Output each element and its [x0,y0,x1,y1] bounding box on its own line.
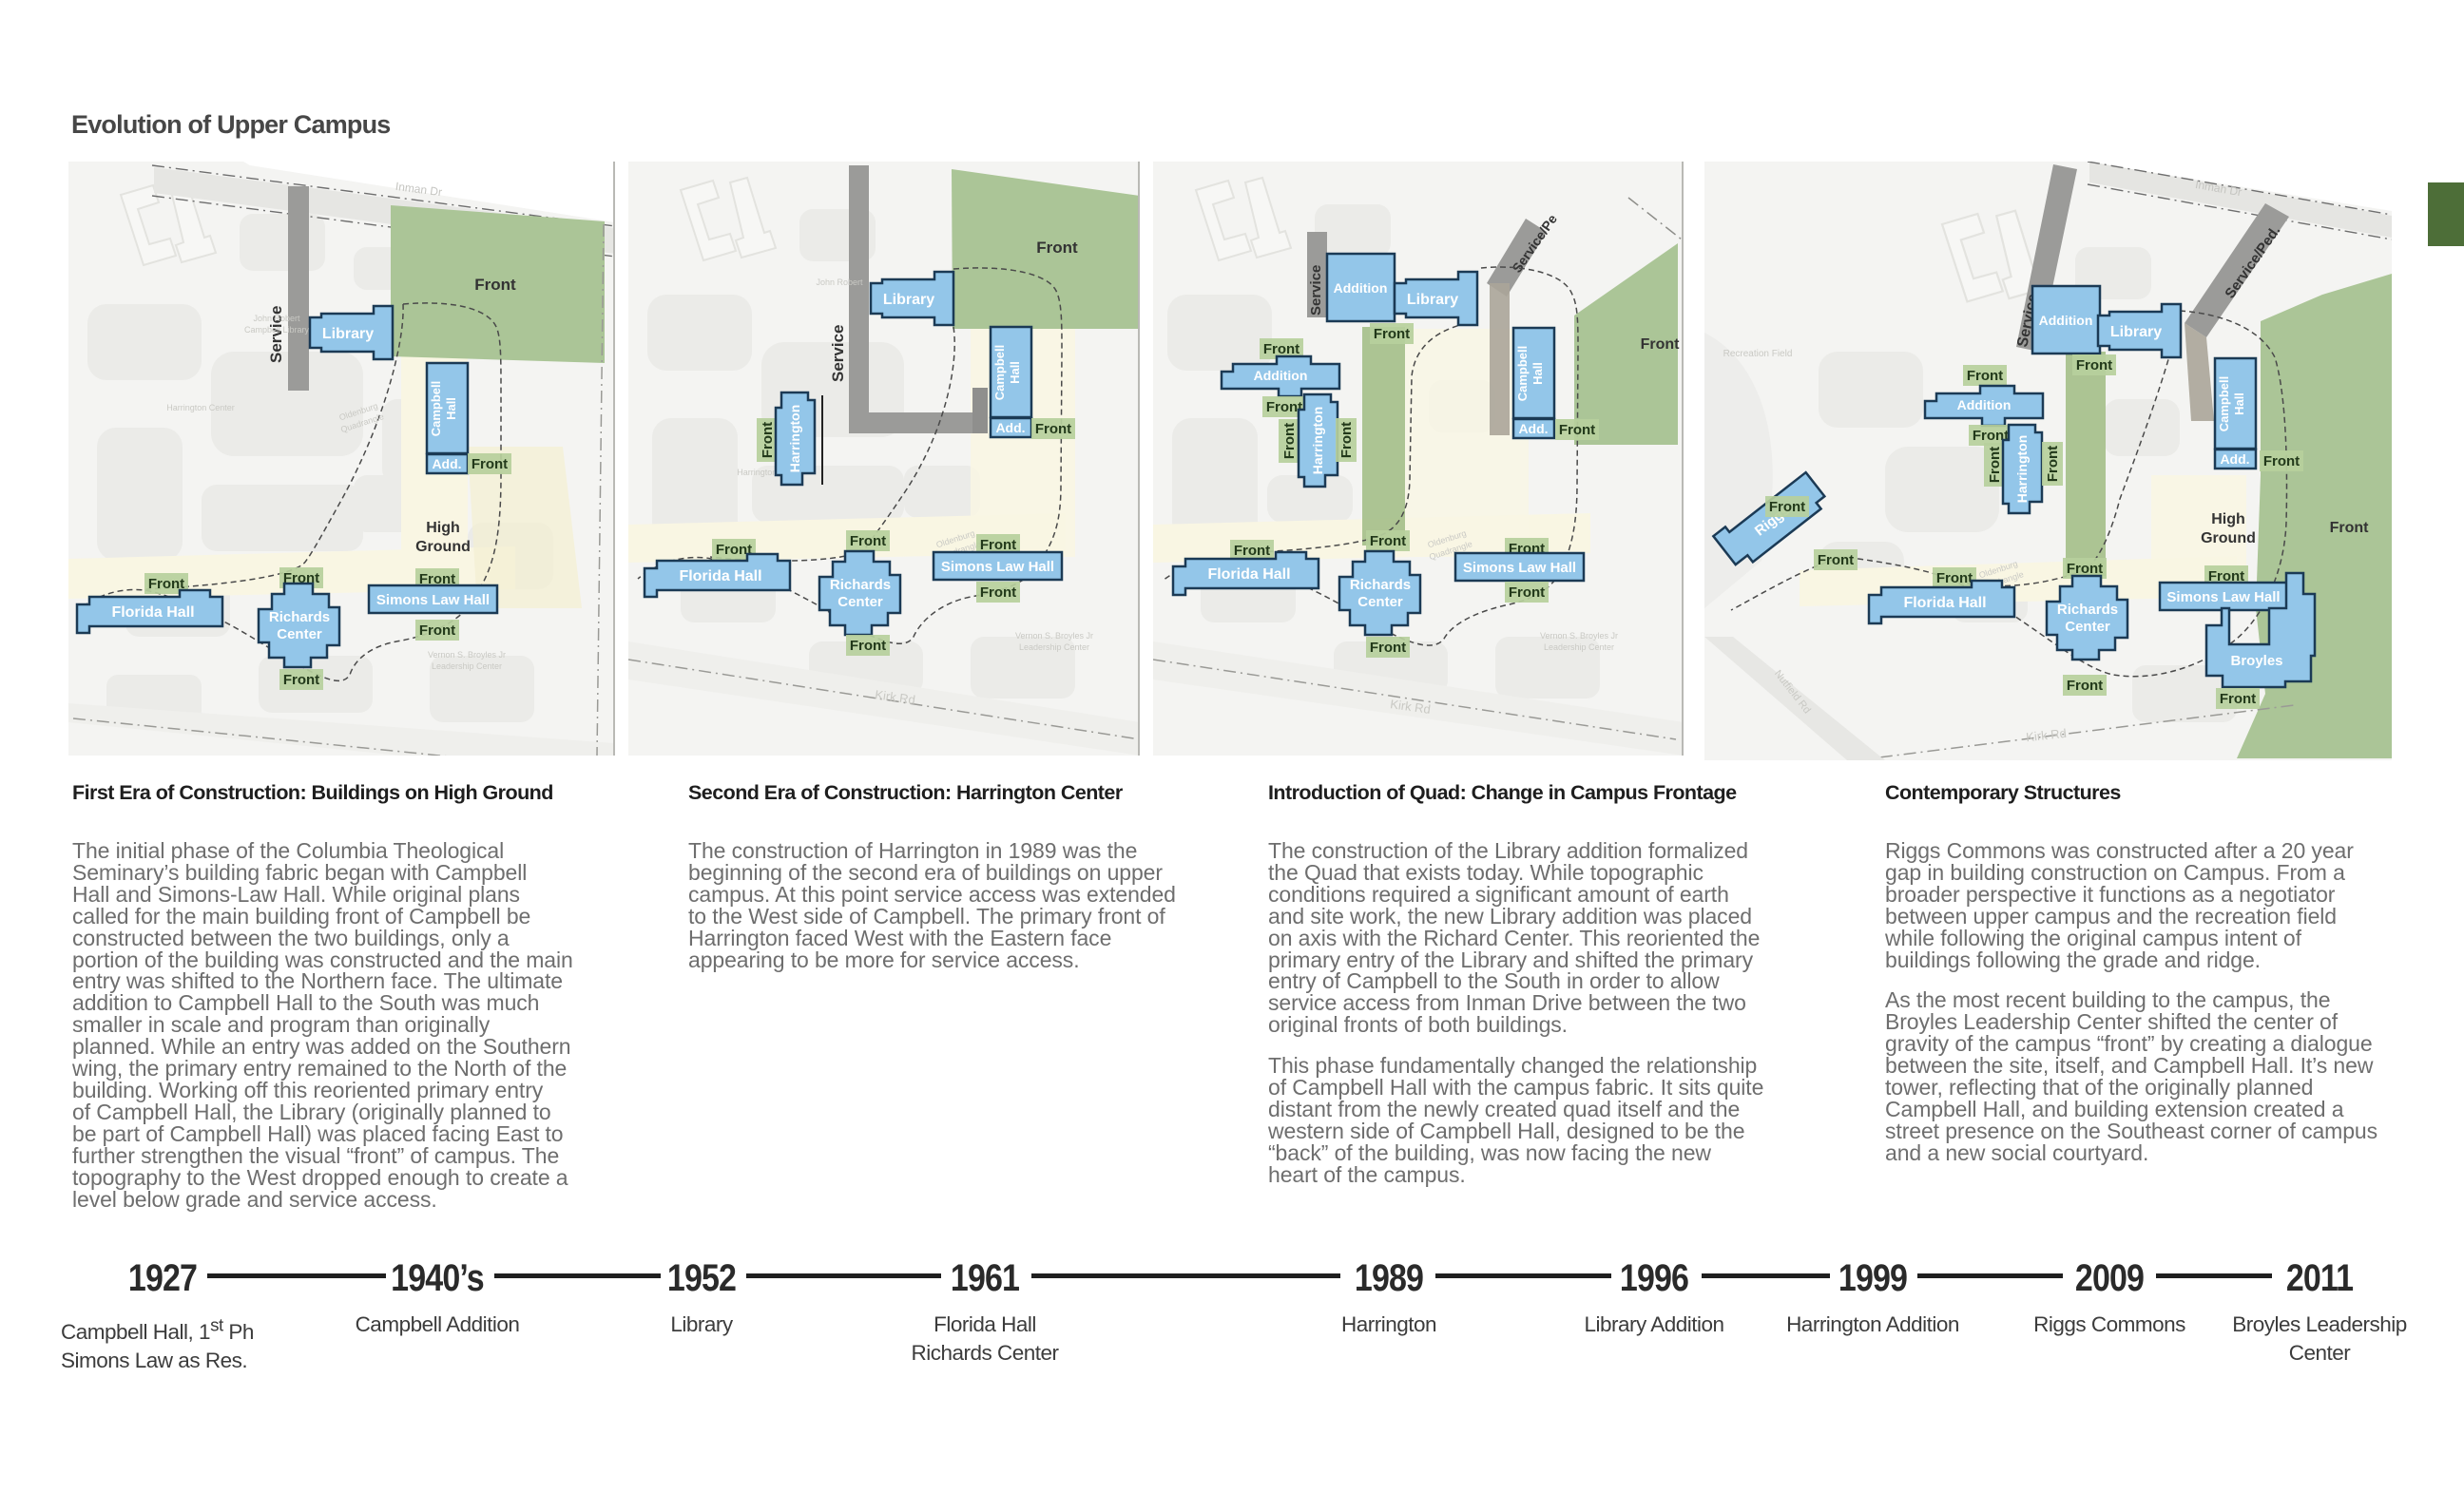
svg-text:Addition: Addition [2039,313,2093,328]
svg-text:High: High [426,520,460,536]
svg-text:Front: Front [1987,447,2003,483]
svg-text:Front: Front [980,537,1016,553]
svg-text:Leadership Center: Leadership Center [432,661,502,671]
svg-text:Ground: Ground [415,539,471,555]
svg-text:Richards: Richards [2057,602,2118,618]
svg-text:Front: Front [760,422,776,458]
svg-text:Front: Front [283,672,319,688]
svg-text:Front: Front [2330,520,2370,536]
svg-text:Add.: Add. [995,420,1025,435]
svg-text:Simons Law Hall: Simons Law Hall [2166,589,2280,605]
svg-text:Simons Law Hall: Simons Law Hall [376,592,490,608]
svg-text:Front: Front [1641,336,1681,353]
svg-text:Front: Front [1818,552,1854,568]
svg-text:Front: Front [850,638,886,654]
svg-text:Broyles: Broyles [2230,653,2282,669]
svg-text:Front: Front [1266,399,1302,415]
svg-text:Add.: Add. [1518,421,1548,436]
svg-text:Harrington Center: Harrington Center [166,403,235,412]
svg-text:Vernon S. Broyles Jr: Vernon S. Broyles Jr [1015,631,1093,641]
svg-text:Campbell: Campbell [2217,376,2231,432]
svg-text:Front: Front [2076,357,2112,373]
svg-text:Campbell: Campbell [1515,346,1530,402]
svg-text:Hall: Hall [2232,392,2246,415]
svg-text:Front: Front [1234,543,1270,559]
svg-text:Front: Front [1936,570,1973,586]
svg-text:Center: Center [1357,594,1403,610]
svg-text:Richards: Richards [269,609,330,625]
svg-text:Service: Service [1308,265,1324,316]
svg-text:Simons Law Hall: Simons Law Hall [1463,560,1576,576]
svg-text:Leadership Center: Leadership Center [1544,642,1614,652]
svg-text:Library: Library [2110,324,2162,340]
svg-text:Campbell: Campbell [992,345,1007,401]
svg-text:Front: Front [1281,423,1298,459]
svg-text:Center: Center [837,594,883,610]
svg-text:Florida Hall: Florida Hall [111,604,194,621]
svg-text:Front: Front [2045,446,2061,482]
svg-text:Front: Front [1370,533,1406,549]
svg-text:Front: Front [474,276,516,294]
svg-text:Hall: Hall [1008,361,1022,384]
svg-text:Front: Front [1035,421,1071,437]
svg-text:John Robert: John Robert [816,278,863,287]
svg-text:Front: Front [1370,640,1406,656]
svg-text:Front: Front [1036,239,1078,257]
svg-text:Florida Hall: Florida Hall [679,568,761,584]
svg-text:Front: Front [472,456,508,472]
svg-text:Richards: Richards [830,577,891,593]
svg-text:Front: Front [419,622,455,639]
svg-text:Front: Front [1338,422,1355,458]
svg-text:Front: Front [1509,584,1545,601]
svg-text:Addition: Addition [1254,368,1308,383]
svg-text:Library: Library [883,292,934,308]
svg-text:Harrington: Harrington [2014,435,2030,504]
svg-text:Front: Front [2263,453,2300,469]
svg-text:Add.: Add. [432,456,461,471]
svg-text:Front: Front [2067,678,2103,694]
svg-text:Florida Hall: Florida Hall [1207,566,1290,583]
svg-text:Vernon S. Broyles Jr: Vernon S. Broyles Jr [1540,631,1618,641]
svg-text:Campbell Library: Campbell Library [244,325,310,335]
svg-text:Hall: Hall [1530,362,1545,385]
svg-text:Front: Front [1263,341,1299,357]
svg-text:Front: Front [1374,326,1410,342]
svg-text:Recreation Field: Recreation Field [1723,349,1793,359]
svg-text:Ground: Ground [2201,530,2256,546]
svg-text:Center: Center [277,626,322,642]
svg-text:John Robert: John Robert [253,314,300,323]
svg-text:Campbell: Campbell [429,381,443,437]
svg-text:Library: Library [322,326,374,342]
svg-text:Addition: Addition [1334,280,1388,296]
svg-text:Hall: Hall [444,397,458,420]
svg-text:Simons Law Hall: Simons Law Hall [941,559,1054,575]
svg-text:Library: Library [1407,292,1458,308]
svg-text:Front: Front [2220,691,2256,707]
svg-text:Addition: Addition [1957,397,2012,412]
svg-text:Vernon S. Broyles Jr: Vernon S. Broyles Jr [428,650,506,660]
svg-text:High: High [2211,511,2245,527]
svg-text:Front: Front [1559,422,1595,438]
svg-text:Add.: Add. [2220,451,2249,467]
svg-text:Florida Hall: Florida Hall [1903,595,1986,611]
svg-text:Harrington: Harrington [1310,407,1325,475]
svg-text:Harrington: Harrington [787,405,802,473]
svg-text:Richards: Richards [1350,577,1411,593]
svg-text:Front: Front [980,584,1016,601]
svg-text:Front: Front [1967,368,2003,384]
svg-text:Front: Front [2067,561,2103,577]
svg-text:Center: Center [2065,619,2110,635]
svg-text:Front: Front [1769,499,1805,515]
svg-text:Leadership Center: Leadership Center [1019,642,1089,652]
svg-text:Front: Front [850,533,886,549]
svg-text:Service: Service [829,325,847,383]
